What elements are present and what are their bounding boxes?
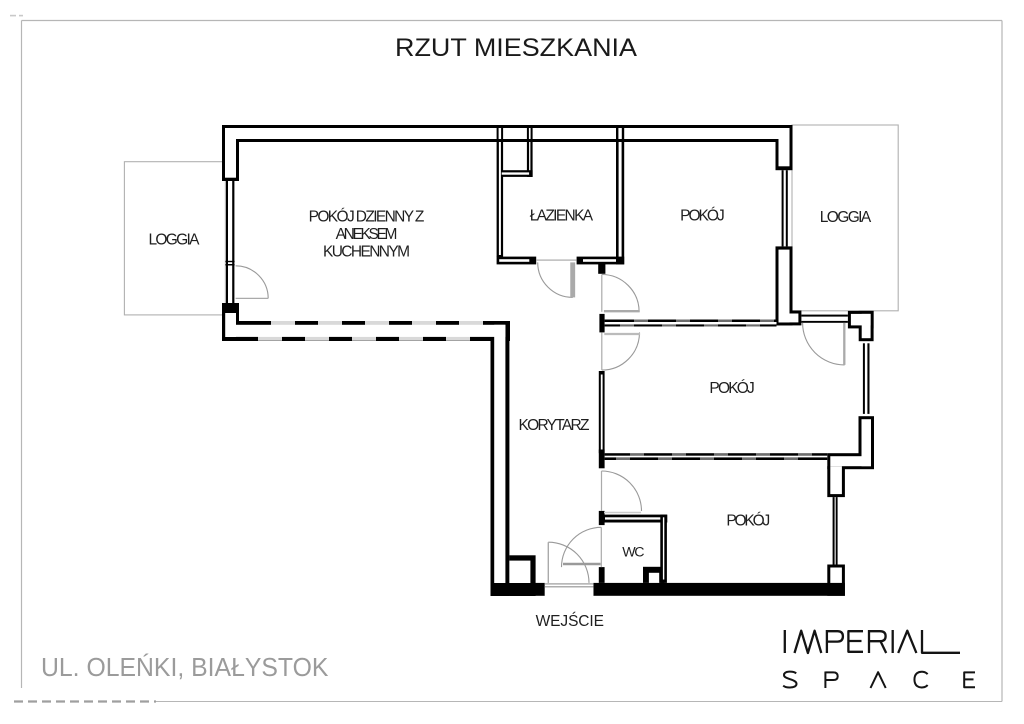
svg-text:POKÓJ: POKÓJ [726,513,770,530]
svg-text:POKÓJ DZIENNY Z: POKÓJ DZIENNY Z [309,209,425,226]
svg-text:LOGGIA: LOGGIA [149,232,201,249]
svg-text:LOGGIA: LOGGIA [820,209,872,226]
svg-text:POKÓJ: POKÓJ [709,380,754,397]
svg-text:ŁAZIENKA: ŁAZIENKA [530,208,594,225]
svg-text:KORYTARZ: KORYTARZ [519,417,590,434]
svg-text:ANEKSEM: ANEKSEM [336,226,398,243]
svg-text:RZUT MIESZKANIA: RZUT MIESZKANIA [395,35,638,62]
svg-text:WC: WC [622,545,644,561]
svg-text:KUCHENNYM: KUCHENNYM [323,244,410,261]
svg-text:WEJŚCIE: WEJŚCIE [536,612,604,630]
svg-text:POKÓJ: POKÓJ [680,207,725,224]
svg-text:UL. OLEŃKI, BIAŁYSTOK: UL. OLEŃKI, BIAŁYSTOK [41,653,328,682]
